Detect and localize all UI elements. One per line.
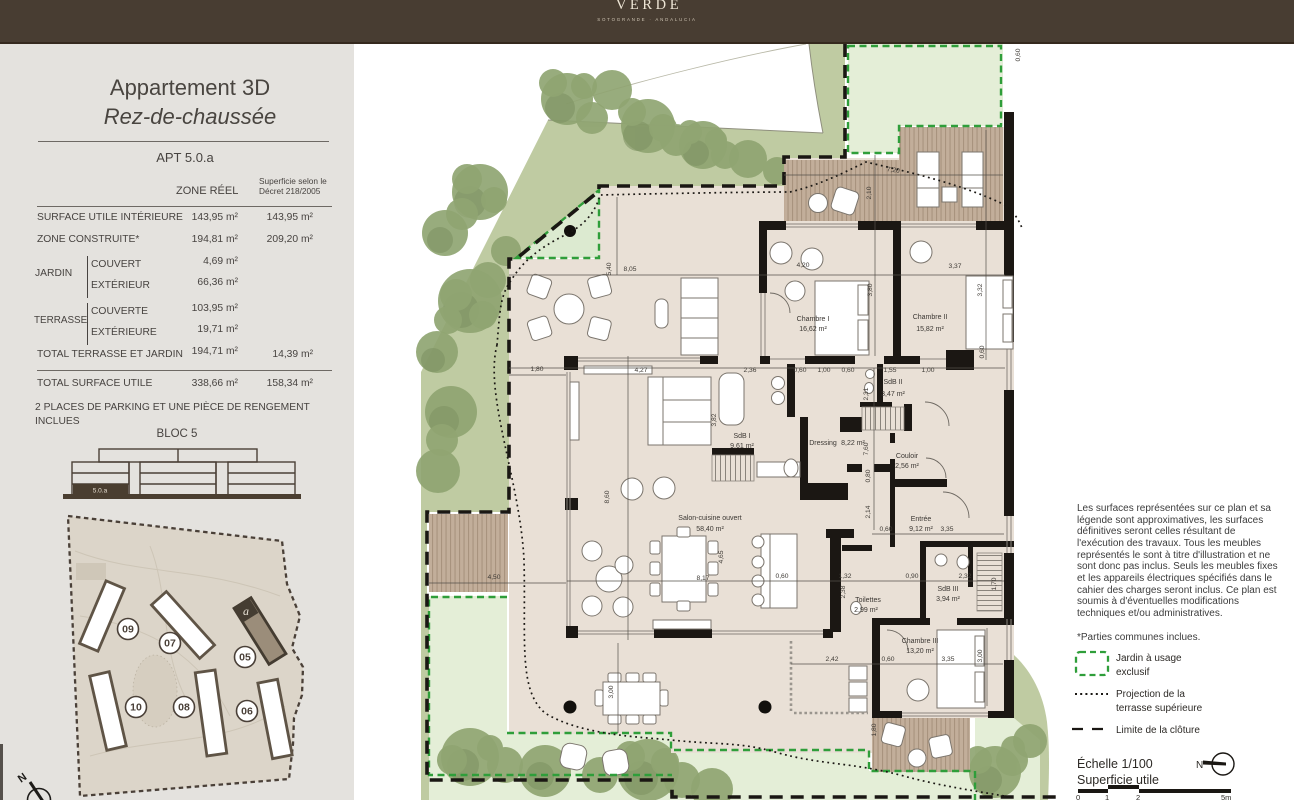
svg-text:Limite de la clôture: Limite de la clôture [1116, 725, 1200, 736]
svg-text:Chambre II: Chambre II [913, 314, 948, 321]
svg-text:8,22 m²: 8,22 m² [841, 440, 865, 447]
svg-text:1,32: 1,32 [838, 573, 851, 580]
svg-text:Couloir: Couloir [896, 453, 919, 460]
svg-text:Échelle 1/100: Échelle 1/100 [1077, 756, 1153, 771]
svg-text:16,62 m²: 16,62 m² [799, 326, 827, 333]
svg-text:2,99 m²: 2,99 m² [854, 607, 878, 614]
svg-text:1,70: 1,70 [991, 577, 998, 590]
svg-text:0,60: 0,60 [793, 367, 806, 374]
svg-text:1,00: 1,00 [921, 367, 934, 374]
svg-text:SdB III: SdB III [937, 586, 958, 593]
svg-text:Chambre III: Chambre III [902, 638, 939, 645]
svg-text:08: 08 [178, 702, 190, 714]
svg-text:13,20 m²: 13,20 m² [906, 648, 934, 655]
svg-text:SdB I: SdB I [733, 433, 750, 440]
svg-text:2,42: 2,42 [825, 656, 838, 663]
svg-text:Superficie utile: Superficie utile [1077, 773, 1159, 787]
svg-text:N: N [16, 771, 29, 785]
svg-text:3,00: 3,00 [608, 685, 615, 698]
svg-text:1: 1 [1105, 793, 1109, 800]
svg-text:1,80: 1,80 [530, 366, 543, 373]
svg-text:3,32: 3,32 [977, 283, 984, 296]
svg-text:0: 0 [1076, 793, 1080, 800]
svg-text:0,80: 0,80 [865, 469, 872, 482]
svg-text:0,60: 0,60 [1015, 48, 1022, 61]
svg-text:3,35: 3,35 [940, 526, 953, 533]
svg-text:5.0.a: 5.0.a [93, 488, 108, 495]
svg-text:1,80: 1,80 [871, 723, 878, 736]
svg-text:Salon-cuisine ouvert: Salon-cuisine ouvert [678, 515, 741, 522]
svg-text:2,56 m²: 2,56 m² [895, 463, 919, 470]
svg-text:Projection de la: Projection de la [1116, 689, 1185, 700]
svg-text:2,36: 2,36 [743, 367, 756, 374]
svg-text:9,61 m²: 9,61 m² [730, 443, 754, 450]
svg-text:0,60: 0,60 [979, 345, 986, 358]
svg-text:Jardin à usage: Jardin à usage [1116, 653, 1182, 664]
svg-text:4,27: 4,27 [634, 367, 647, 374]
svg-text:3,82: 3,82 [711, 413, 718, 426]
svg-text:3,47 m²: 3,47 m² [881, 391, 905, 398]
svg-text:terrasse supérieure: terrasse supérieure [1116, 703, 1203, 714]
svg-text:8,05: 8,05 [623, 266, 636, 273]
svg-text:Dressing: Dressing [809, 440, 837, 447]
svg-text:4,65: 4,65 [718, 550, 725, 563]
svg-text:0,60: 0,60 [841, 367, 854, 374]
svg-text:9,12 m²: 9,12 m² [909, 526, 933, 533]
svg-text:3,94 m²: 3,94 m² [936, 596, 960, 603]
svg-text:06: 06 [241, 706, 253, 718]
svg-text:SdB II: SdB II [883, 379, 902, 386]
svg-text:Entrée: Entrée [911, 516, 932, 523]
svg-text:8,17: 8,17 [696, 575, 709, 582]
svg-text:8,60: 8,60 [604, 490, 611, 503]
svg-text:0,90: 0,90 [905, 573, 918, 580]
svg-text:5m: 5m [1221, 793, 1231, 800]
svg-text:4,50: 4,50 [487, 574, 500, 581]
svg-text:2,38: 2,38 [840, 585, 847, 598]
svg-text:1,00: 1,00 [817, 367, 830, 374]
svg-text:0,60: 0,60 [879, 526, 892, 533]
svg-text:10: 10 [130, 702, 142, 714]
svg-text:Chambre I: Chambre I [797, 316, 830, 323]
svg-text:exclusif: exclusif [1116, 667, 1150, 678]
svg-text:N: N [1196, 760, 1203, 771]
svg-text:5,40: 5,40 [606, 262, 613, 275]
svg-text:09: 09 [122, 624, 134, 636]
svg-text:4,20: 4,20 [796, 262, 809, 269]
svg-text:0,60: 0,60 [881, 656, 894, 663]
svg-text:3,35: 3,35 [941, 656, 954, 663]
svg-text:2,31: 2,31 [863, 387, 870, 400]
svg-text:a: a [243, 604, 249, 618]
svg-text:2,10: 2,10 [866, 186, 873, 199]
svg-text:3,37: 3,37 [948, 263, 961, 270]
svg-text:15,82 m²: 15,82 m² [916, 326, 944, 333]
svg-text:3,80: 3,80 [867, 283, 874, 296]
svg-text:3,00: 3,00 [977, 649, 984, 662]
svg-text:0,60: 0,60 [775, 573, 788, 580]
svg-text:2: 2 [1136, 793, 1140, 800]
svg-text:58,40 m²: 58,40 m² [696, 526, 724, 533]
svg-text:07: 07 [164, 638, 176, 650]
svg-text:2,32: 2,32 [958, 573, 971, 580]
svg-text:Toilettes: Toilettes [855, 597, 881, 604]
svg-text:1,55: 1,55 [883, 367, 896, 374]
svg-text:05: 05 [239, 652, 251, 664]
svg-text:2,14: 2,14 [865, 505, 872, 518]
